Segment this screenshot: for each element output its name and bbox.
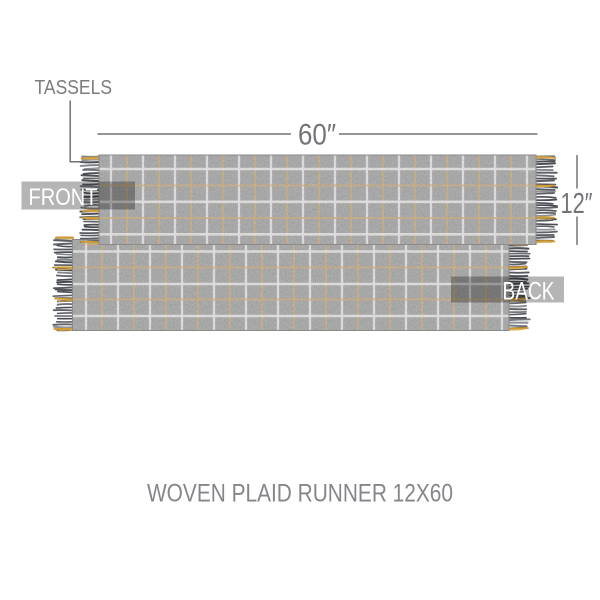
svg-text:BACK: BACK [503,277,555,305]
svg-text:12″: 12″ [561,188,593,220]
svg-text:FRONT: FRONT [29,184,98,211]
svg-text:TASSELS: TASSELS [35,76,113,99]
svg-text:WOVEN PLAID RUNNER 12X60: WOVEN PLAID RUNNER 12X60 [147,480,453,508]
svg-text:60″: 60″ [298,119,336,152]
